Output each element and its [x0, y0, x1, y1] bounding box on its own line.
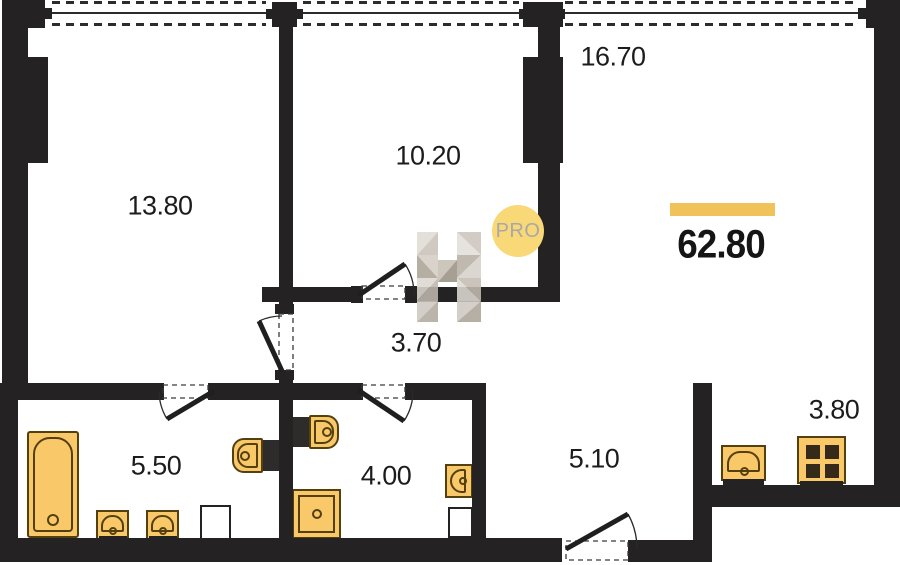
door-swing-arc [159, 391, 167, 419]
pro-badge-label: PRO [496, 220, 541, 243]
door-leaf [359, 264, 405, 295]
room-area-label: 5.50 [131, 451, 182, 482]
door-leaf [358, 390, 404, 421]
door-leaf [566, 514, 628, 549]
pro-badge: PRO [492, 205, 544, 257]
room-area-label: 3.70 [391, 328, 442, 359]
floor-plan: PRO 13.80 10.20 16.70 3.70 5.50 4.00 5.1… [0, 0, 900, 565]
room-area-label: 16.70 [580, 42, 645, 73]
room-area-label: 4.00 [361, 461, 412, 492]
door-swing-arc [405, 264, 414, 295]
room-area-label: 3.80 [809, 395, 860, 426]
door-opening-dashed [279, 314, 293, 370]
room-area-label: 5.10 [569, 444, 620, 475]
door-swing-arc [404, 390, 413, 421]
room-area-label: 13.80 [127, 191, 192, 222]
total-area-label: 62.80 [677, 223, 765, 268]
room-area-label: 10.20 [395, 141, 460, 172]
door-swing-arc [628, 514, 637, 549]
developer-logo-watermark [417, 232, 481, 322]
total-area-accent-bar [670, 203, 775, 216]
door-leaf [167, 391, 214, 419]
